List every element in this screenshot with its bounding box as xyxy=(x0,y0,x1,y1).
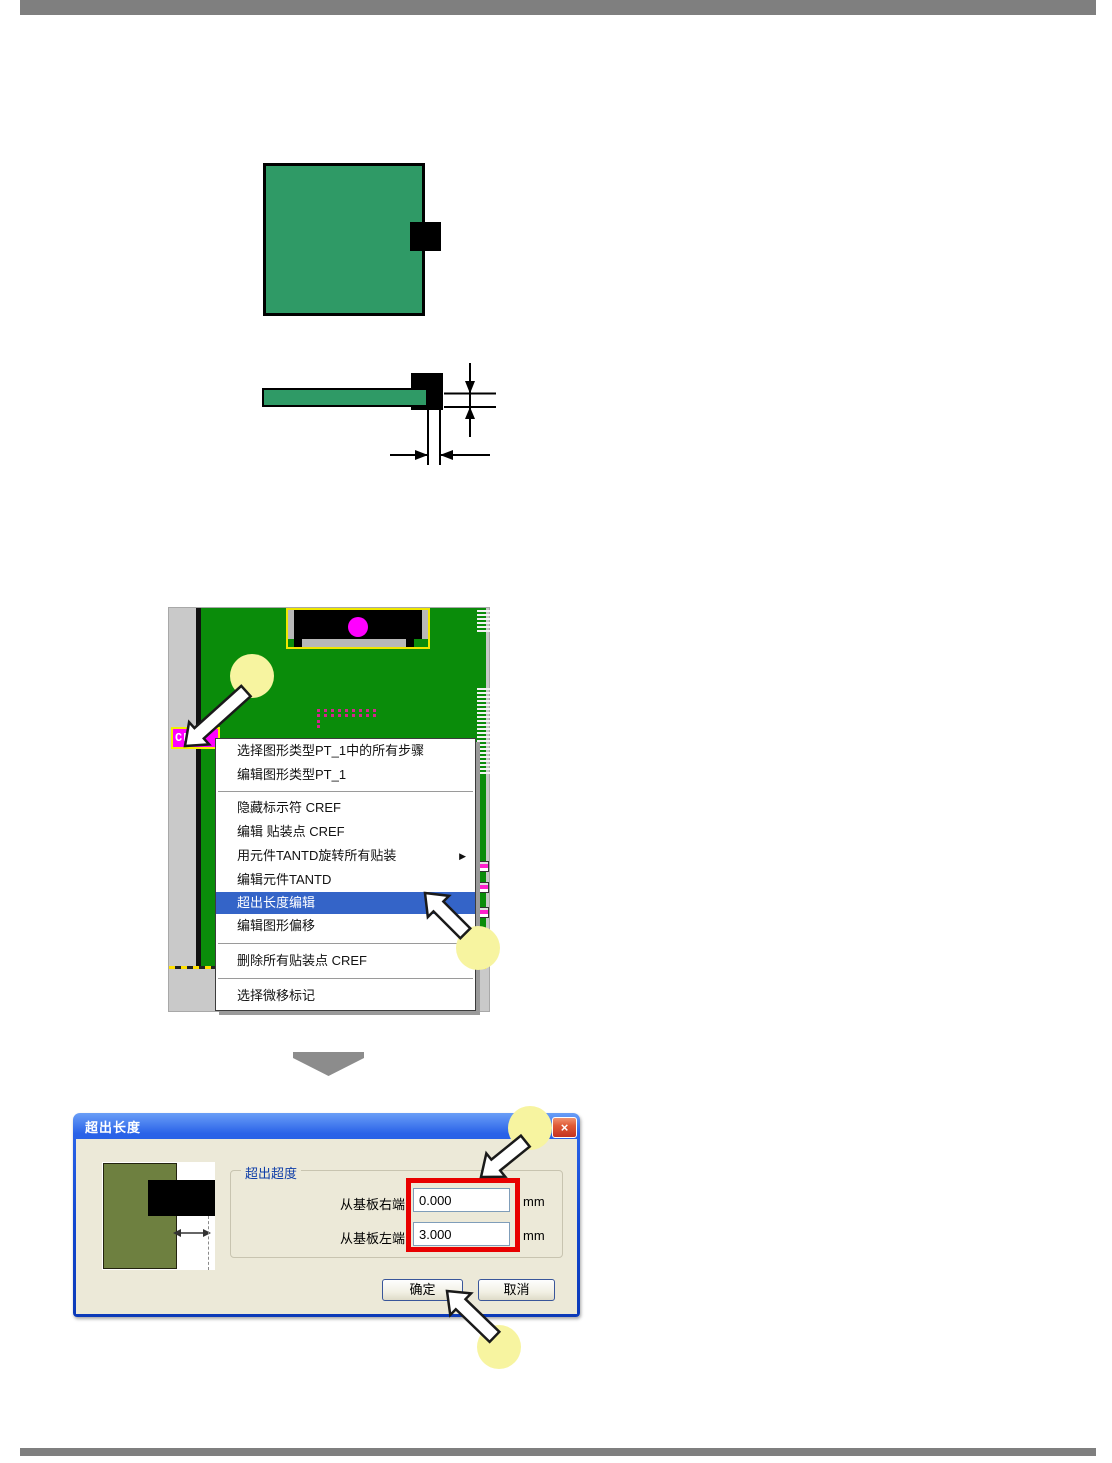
figure-overhang-dimensions xyxy=(250,355,500,470)
pad-dots-row xyxy=(317,714,379,717)
annotation-arrow-to-ok xyxy=(400,1250,550,1370)
annotation-arrow-to-fields xyxy=(430,1120,570,1220)
dialog-title: 超出长度 xyxy=(85,1117,141,1136)
preview-board xyxy=(103,1163,177,1269)
component-cap-right xyxy=(406,639,414,647)
page-top-rule xyxy=(20,0,1096,15)
fiducial-dot xyxy=(348,617,368,637)
right-end-label: 从基板右端 xyxy=(305,1194,405,1213)
figure-board-top-view xyxy=(263,163,425,316)
menu-item-edit-placement-point[interactable]: 编辑 贴装点 CREF xyxy=(216,820,475,844)
preview-part xyxy=(148,1180,215,1216)
left-end-label: 从基板左端 xyxy=(305,1228,405,1247)
figure-overhang-part xyxy=(410,222,441,251)
annotation-arrow-to-cref xyxy=(100,640,320,800)
page-bottom-rule xyxy=(20,1448,1096,1456)
menu-item-select-nudge-mark[interactable]: 选择微移标记 xyxy=(216,984,475,1010)
connector-fingers-top xyxy=(477,610,490,632)
annotation-arrow-to-menu-item xyxy=(380,860,510,980)
left-end-unit: mm xyxy=(523,1228,545,1243)
manual-page: CREF 选择图形类型PT_1中的所有步骤 编辑图形类型PT_1 隐藏标示符 C… xyxy=(0,0,1112,1463)
flow-down-arrow xyxy=(290,1050,370,1080)
menu-item-label: 用元件TANTD旋转所有贴装 xyxy=(237,848,396,863)
groupbox-label: 超出超度 xyxy=(241,1163,301,1182)
component-pad-right xyxy=(422,610,428,639)
pad-dots-row xyxy=(317,709,379,712)
preview-dashed-line xyxy=(208,1216,210,1270)
connector-fingers-mid xyxy=(477,688,490,774)
